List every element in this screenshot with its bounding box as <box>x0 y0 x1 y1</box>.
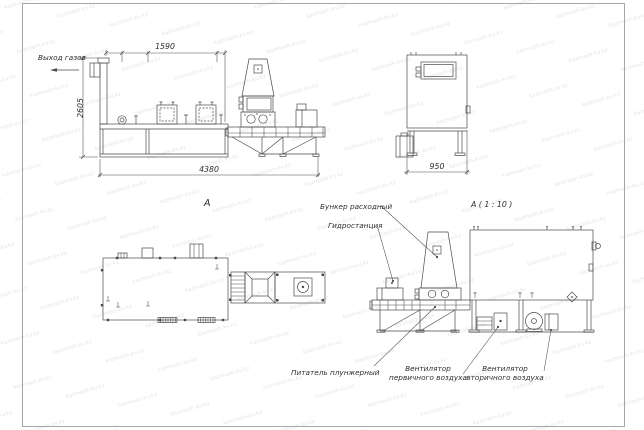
dim-950: 950 <box>430 162 445 171</box>
dim-4380: 4380 <box>199 165 219 174</box>
secondary-fan-label-line2: вторичного воздуха <box>466 373 543 382</box>
drawing-sheet: kazmash-kv.kz kazmash-kv.kz <box>0 0 644 430</box>
detail-title: А ( 1 : 10 ) <box>470 200 512 209</box>
gas-outlet-label: Выход газов <box>38 53 86 62</box>
primary-fan-label-line1: Вентилятор <box>405 364 451 373</box>
feeder-label: Питатель плунжерный <box>291 368 380 377</box>
primary-fan-label-line2: первичного воздуха <box>389 373 467 382</box>
hydraulic-label: Гидростанция <box>328 221 383 230</box>
plan-view-label: А <box>203 198 211 209</box>
secondary-fan-label-line1: Вентилятор <box>482 364 528 373</box>
cad-drawing: kazmash-kv.kz kazmash-kv.kz <box>0 0 644 430</box>
watermark-layer <box>0 0 644 430</box>
dim-1590: 1590 <box>155 42 175 51</box>
dim-2605: 2605 <box>76 98 85 118</box>
